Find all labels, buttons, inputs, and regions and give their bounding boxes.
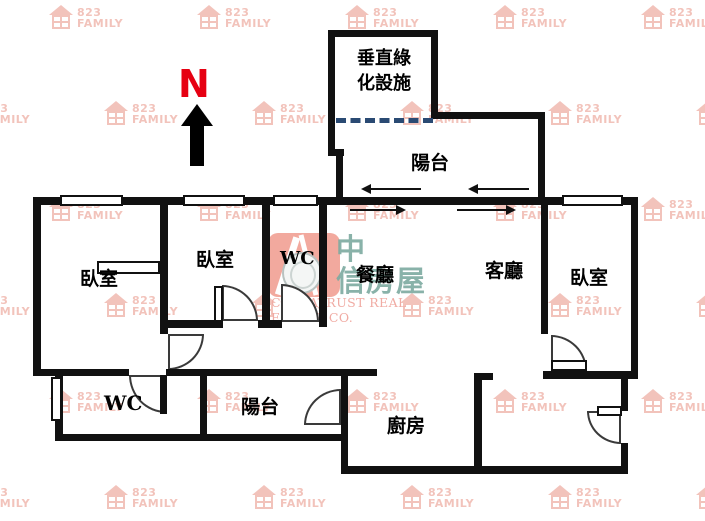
window-wc-top <box>273 195 318 206</box>
door-leaf-rear-room <box>597 406 622 416</box>
floor-plan-canvas: 823FAMILY 823FAMILY 823FAMILY 823FAMILY … <box>0 0 705 521</box>
house-icon <box>344 5 370 30</box>
slide-arrow-left-icon <box>470 188 529 190</box>
brand-watermark: 823FAMILY <box>251 101 326 126</box>
wall-kitchen-bottom <box>341 466 628 474</box>
brand-watermark: 823FAMILY <box>0 101 30 126</box>
wall-bed3-bottom <box>543 371 638 379</box>
label-bedroom-3: 臥室 <box>570 263 608 290</box>
wall-facility-left <box>328 30 335 156</box>
house-icon <box>547 101 573 126</box>
watermark-text: 823FAMILY <box>0 103 30 125</box>
watermark-text: 823FAMILY <box>0 487 30 509</box>
slide-arrow-right-icon <box>457 209 514 211</box>
watermark-text: 823FAMILY <box>669 199 705 221</box>
watermark-text: 823FAMILY <box>576 295 622 317</box>
house-icon <box>695 101 705 126</box>
brand-watermark: 823FAMILY <box>399 485 474 510</box>
watermark-text: 823FAMILY <box>373 391 419 413</box>
window-bed1 <box>60 195 123 206</box>
house-icon <box>103 293 129 318</box>
wall-kitchen-left <box>341 373 348 474</box>
brand-watermark: 823FAMILY <box>251 485 326 510</box>
house-icon <box>547 293 573 318</box>
wall-bed1-right <box>160 197 168 334</box>
window-bed2 <box>183 195 245 206</box>
watermark-text: 823FAMILY <box>132 103 178 125</box>
house-icon <box>640 389 666 414</box>
label-wc-bottom: WC <box>104 391 142 415</box>
brand-watermark: 823FAMILY <box>196 5 271 30</box>
wall-wc-balcony-divider <box>200 373 207 434</box>
watermark-text: 823FAMILY <box>428 487 474 509</box>
brand-watermark: 823FAMILY <box>344 5 419 30</box>
watermark-text: 823FAMILY <box>132 295 178 317</box>
brand-watermark: 823FAMILY <box>695 293 705 318</box>
brand-watermark: 823FAMILY <box>640 5 705 30</box>
door-leaf-bed3 <box>551 360 587 371</box>
wall-dining-left <box>319 197 327 327</box>
house-icon <box>492 389 518 414</box>
brand-watermark: 823FAMILY <box>547 101 622 126</box>
brand-watermark: 823FAMILY <box>547 293 622 318</box>
label-balcony-bottom: 陽台 <box>241 392 279 419</box>
label-dining: 餐廳 <box>356 260 394 287</box>
brand-watermark: 823FAMILY <box>695 101 705 126</box>
house-icon <box>695 485 705 510</box>
wall-left-outer <box>33 197 41 376</box>
label-bedroom-2: 臥室 <box>196 245 234 272</box>
window-bed3 <box>562 195 623 206</box>
house-icon <box>196 5 222 30</box>
brand-watermark: 823FAMILY <box>0 485 30 510</box>
brand-watermark: 823FAMILY <box>640 389 705 414</box>
label-wc-top: WC <box>280 248 315 269</box>
window-wc-bottom <box>51 377 62 421</box>
label-bedroom-1: 臥室 <box>80 264 118 291</box>
brand-watermark: 823FAMILY <box>48 5 123 30</box>
compass-north-label: N <box>178 62 210 106</box>
house-icon <box>640 5 666 30</box>
house-icon <box>103 101 129 126</box>
label-kitchen: 廚房 <box>387 411 425 438</box>
watermark-text: 823FAMILY <box>576 487 622 509</box>
compass-arrow-shaft <box>190 126 204 166</box>
watermark-text: 823FAMILY <box>576 103 622 125</box>
watermark-text: 823FAMILY <box>280 487 326 509</box>
slide-arrow-left-icon <box>363 188 421 190</box>
watermark-text: 823FAMILY <box>669 7 705 29</box>
brand-watermark: 823FAMILY <box>695 485 705 510</box>
compass-arrow-icon <box>181 104 213 126</box>
door-leaf-bed2 <box>214 286 223 322</box>
watermark-text: 823FAMILY <box>521 391 567 413</box>
wall-strip-bottom <box>55 434 348 441</box>
watermark-text: 823FAMILY <box>669 391 705 413</box>
house-icon <box>251 101 277 126</box>
wall-rear-right-upper <box>621 378 628 411</box>
label-living: 客廳 <box>485 256 523 283</box>
wall-right-outer <box>631 197 638 378</box>
wall-facility-top <box>328 30 438 37</box>
brand-watermark: 823FAMILY <box>103 485 178 510</box>
house-icon <box>251 485 277 510</box>
wall-kitchen-right <box>474 373 482 466</box>
wall-balcony-step <box>431 112 545 119</box>
house-icon <box>547 485 573 510</box>
brand-watermark: 823FAMILY <box>547 485 622 510</box>
watermark-text: 823FAMILY <box>373 7 419 29</box>
wall-kitchen-right-cap <box>474 373 493 380</box>
wall-bed2-wc-divider <box>262 197 270 328</box>
brand-watermark: 823FAMILY <box>492 5 567 30</box>
brand-watermark: 823FAMILY <box>103 101 178 126</box>
house-icon <box>695 293 705 318</box>
label-balcony-top: 陽台 <box>411 148 449 175</box>
wall-balcony-left <box>336 149 343 204</box>
facility-dashed-boundary <box>336 118 433 123</box>
door-leaf-wc-bottom <box>160 375 167 414</box>
house-icon <box>640 197 666 222</box>
brand-watermark: 823FAMILY <box>492 389 567 414</box>
house-icon <box>103 485 129 510</box>
house-icon <box>399 485 425 510</box>
wall-facility-right <box>431 30 438 119</box>
watermark-text: 823FAMILY <box>225 7 271 29</box>
wall-balcony-right <box>538 112 545 204</box>
wall-living-bed3-divider <box>541 197 548 334</box>
brand-watermark: 823FAMILY <box>640 197 705 222</box>
label-green-facility: 垂直綠化設施 <box>342 46 426 96</box>
wall-rear-right-lower <box>621 443 628 474</box>
watermark-text: 823FAMILY <box>77 7 123 29</box>
brand-watermark: 823FAMILY <box>0 293 30 318</box>
watermark-text: 823FAMILY <box>280 103 326 125</box>
watermark-text: 823FAMILY <box>0 295 30 317</box>
slide-arrow-right-icon <box>350 209 404 211</box>
house-icon <box>492 5 518 30</box>
watermark-text: 823FAMILY <box>521 7 567 29</box>
watermark-text: 823FAMILY <box>132 487 178 509</box>
house-icon <box>48 5 74 30</box>
wall-bottom-main-left <box>33 369 129 376</box>
